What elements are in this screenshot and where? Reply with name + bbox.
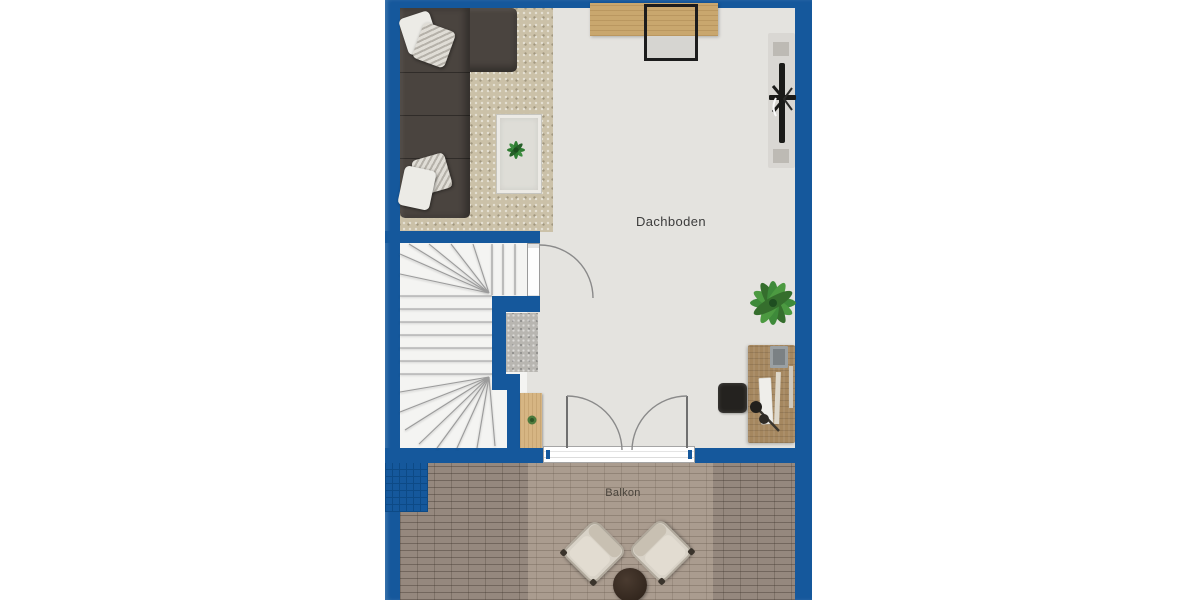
- office-desk: [748, 345, 795, 443]
- room-label-balcony: Balkon: [583, 487, 663, 499]
- hall-mat: [506, 313, 538, 372]
- white-rug: [497, 115, 541, 193]
- mat-pad: [773, 42, 789, 56]
- stair-door: [527, 243, 540, 300]
- mat-pad: [773, 149, 789, 163]
- sideboard: [520, 393, 542, 448]
- balcony-corner-grate: [385, 463, 428, 512]
- hall-wall: [492, 296, 540, 312]
- hall-wall: [492, 374, 520, 390]
- office-chair: [718, 383, 747, 413]
- room-label-attic: Dachboden: [611, 214, 731, 229]
- desk-chair: [644, 4, 698, 61]
- stairwell-wall-top: [385, 231, 540, 243]
- hall-wall: [507, 390, 520, 448]
- floorplan-canvas: Dachboden Balkon: [0, 0, 1200, 600]
- balcony-round-table: [613, 568, 647, 600]
- floorplan: Dachboden Balkon: [385, 0, 812, 600]
- french-door-threshold: [543, 446, 695, 463]
